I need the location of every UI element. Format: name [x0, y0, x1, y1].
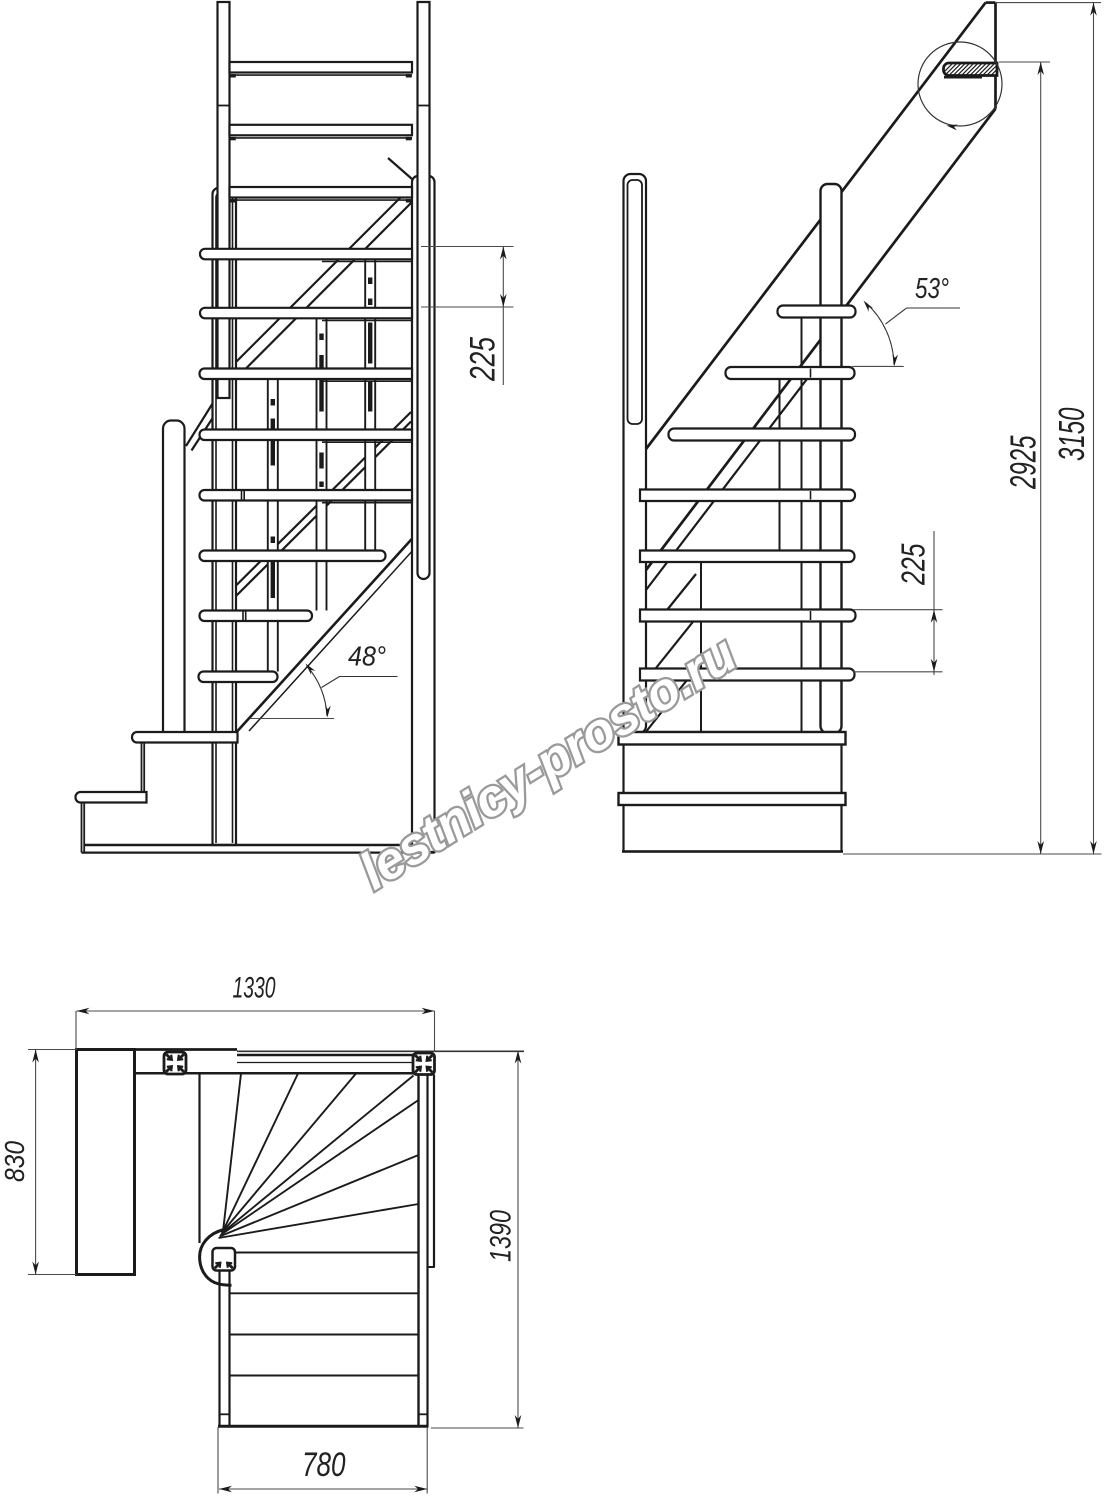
svg-text:225: 225	[895, 543, 932, 586]
svg-text:53°: 53°	[915, 273, 949, 305]
svg-text:780: 780	[302, 1446, 346, 1484]
svg-text:1390: 1390	[485, 1210, 518, 1262]
svg-text:1330: 1330	[233, 972, 276, 1005]
svg-text:225: 225	[464, 337, 503, 382]
svg-text:830: 830	[0, 1140, 30, 1182]
svg-text:2925: 2925	[1003, 435, 1044, 490]
svg-text:48°: 48°	[348, 641, 386, 672]
svg-text:3150: 3150	[1051, 408, 1092, 462]
